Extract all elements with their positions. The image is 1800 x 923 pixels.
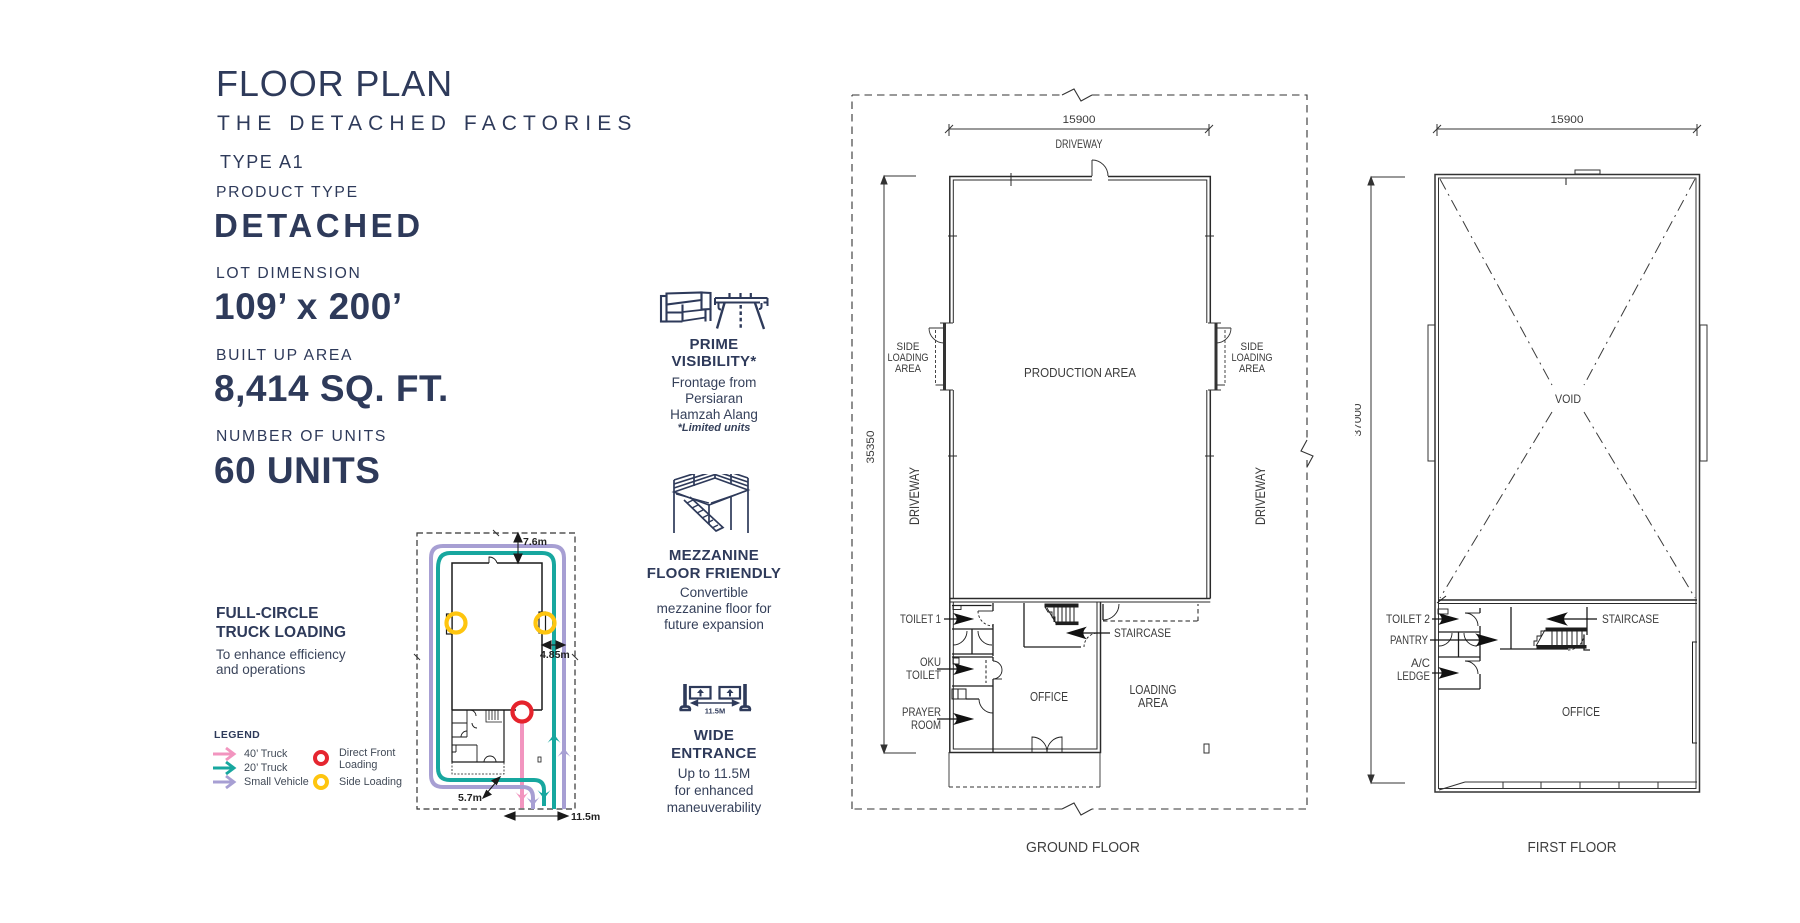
svg-text:ROOM: ROOM: [911, 718, 941, 732]
svg-text:OFFICE: OFFICE: [1030, 690, 1068, 704]
svg-text:DRIVEWAY: DRIVEWAY: [1253, 467, 1268, 525]
svg-text:FIRST FLOOR: FIRST FLOOR: [1528, 840, 1617, 856]
svg-text:11.5m: 11.5m: [571, 811, 600, 823]
svg-text:GROUND FLOOR: GROUND FLOOR: [1026, 840, 1140, 856]
svg-text:AREA: AREA: [895, 363, 922, 375]
svg-text:A/C: A/C: [1411, 656, 1430, 670]
svg-text:STAIRCASE: STAIRCASE: [1114, 626, 1171, 640]
svg-text:DRIVEWAY: DRIVEWAY: [1056, 137, 1103, 151]
svg-text:35350: 35350: [865, 431, 877, 464]
svg-text:OFFICE: OFFICE: [1562, 705, 1600, 719]
svg-text:VOID: VOID: [1555, 392, 1581, 406]
svg-text:LOADING: LOADING: [1130, 683, 1177, 697]
svg-text:11.5M: 11.5M: [705, 707, 725, 716]
svg-text:STAIRCASE: STAIRCASE: [1602, 612, 1659, 626]
svg-text:PRODUCTION AREA: PRODUCTION AREA: [1024, 366, 1137, 380]
svg-text:TOILET: TOILET: [906, 668, 942, 682]
svg-text:5.7m: 5.7m: [458, 792, 482, 804]
svg-text:OKU: OKU: [920, 655, 941, 669]
svg-text:AREA: AREA: [1138, 696, 1169, 710]
svg-text:TOILET 2: TOILET 2: [1386, 612, 1430, 626]
svg-text:37000: 37000: [1355, 404, 1364, 437]
svg-text:PANTRY: PANTRY: [1390, 633, 1428, 647]
svg-text:AREA: AREA: [1239, 363, 1266, 375]
svg-text:PRAYER: PRAYER: [902, 705, 941, 719]
svg-text:LEDGE: LEDGE: [1397, 669, 1430, 683]
svg-text:TOILET 1: TOILET 1: [900, 612, 941, 626]
svg-text:15900: 15900: [1063, 114, 1096, 126]
svg-text:DRIVEWAY: DRIVEWAY: [907, 467, 922, 525]
svg-text:15900: 15900: [1551, 114, 1584, 126]
svg-text:4.85m: 4.85m: [540, 649, 570, 661]
svg-text:7.6m: 7.6m: [523, 536, 547, 548]
